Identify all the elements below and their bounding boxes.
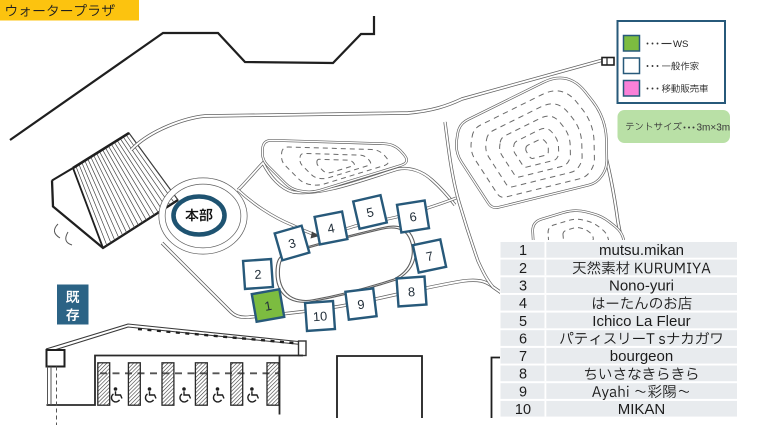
svg-text:MIKAN: MIKAN <box>618 401 666 418</box>
svg-text:8: 8 <box>519 367 527 383</box>
svg-text:7: 7 <box>519 349 527 365</box>
svg-text:Ichico La Fleur: Ichico La Fleur <box>592 313 690 330</box>
svg-text:5: 5 <box>519 314 527 330</box>
svg-text:8: 8 <box>407 284 415 299</box>
svg-text:3: 3 <box>519 279 527 295</box>
svg-text:1: 1 <box>519 243 527 259</box>
svg-text:10: 10 <box>312 308 327 324</box>
svg-text:10: 10 <box>515 402 531 418</box>
svg-text:4: 4 <box>519 296 527 312</box>
svg-text:bourgeon: bourgeon <box>610 348 673 365</box>
svg-text:6: 6 <box>519 331 527 347</box>
svg-text:Nono-yuri: Nono-yuri <box>609 278 674 295</box>
svg-text:mutsu.mikan: mutsu.mikan <box>599 242 684 259</box>
svg-text:3m×3m: 3m×3m <box>697 123 731 134</box>
svg-text:WS: WS <box>673 39 688 50</box>
svg-text:2: 2 <box>519 261 527 277</box>
svg-text:9: 9 <box>519 384 527 400</box>
svg-text:2: 2 <box>254 267 262 282</box>
